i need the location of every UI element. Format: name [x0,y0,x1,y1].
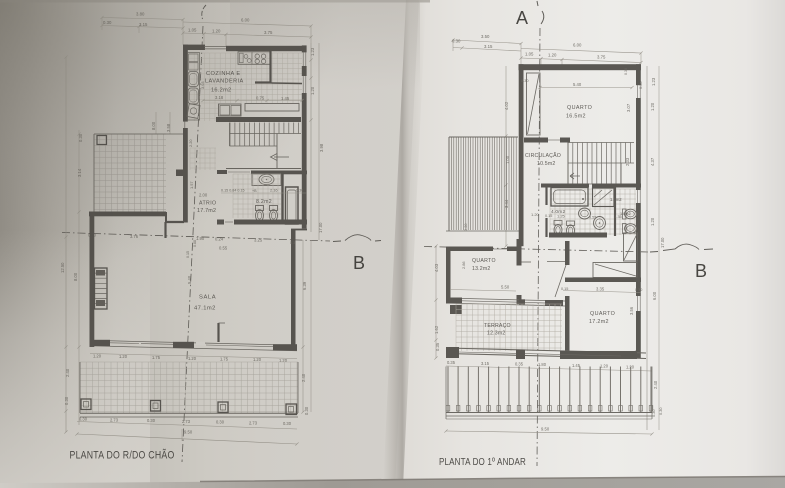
svg-text:2.20: 2.20 [188,139,193,147]
svg-text:4.02: 4.02 [504,101,509,110]
svg-text:12.50: 12.50 [60,262,65,273]
svg-text:1.20: 1.20 [650,102,655,111]
svg-text:A: A [516,8,528,28]
svg-text:6.00: 6.00 [241,18,250,23]
svg-text:2.40: 2.40 [301,373,306,382]
svg-text:6.00: 6.00 [573,43,582,48]
svg-text:B: B [695,261,707,281]
svg-text:3.76: 3.76 [130,234,139,239]
svg-text:0.24: 0.24 [215,237,224,242]
svg-text:16.5m2: 16.5m2 [566,114,586,120]
svg-text:TERRAÇO: TERRAÇO [484,323,511,329]
svg-text:1.20: 1.20 [119,354,128,359]
svg-text:1.20: 1.20 [310,86,315,95]
svg-text:3.15: 3.15 [481,361,490,366]
svg-text:1.20: 1.20 [650,217,655,226]
svg-text:1.20: 1.20 [253,357,262,362]
svg-text:3.15: 3.15 [139,22,148,27]
svg-text:COZINHA E: COZINHA E [206,71,241,77]
svg-text:3.98: 3.98 [319,143,324,152]
svg-text:0.88: 0.88 [193,240,197,247]
svg-text:0.55: 0.55 [219,246,228,251]
svg-text:0.30: 0.30 [216,420,225,425]
svg-text:0.30: 0.30 [521,78,529,83]
svg-text:0.30: 0.30 [635,288,642,292]
svg-text:6.00: 6.00 [652,291,657,300]
svg-text:QUARTO: QUARTO [472,258,496,264]
svg-text:1.20: 1.20 [548,53,557,58]
svg-text:3.50: 3.50 [481,34,490,39]
svg-text:5.3: 5.3 [290,241,295,245]
svg-text:0.15: 0.15 [561,287,568,291]
svg-text:47.1m2: 47.1m2 [194,306,216,312]
svg-text:3.58: 3.58 [166,123,171,132]
svg-text:+B: +B [252,189,257,193]
svg-text:8.2m2: 8.2m2 [256,199,272,205]
svg-text:LAVANDERIA: LAVANDERIA [205,79,244,85]
svg-text:9.50: 9.50 [541,427,550,432]
svg-text:0.30: 0.30 [147,418,156,423]
svg-text:1.23: 1.23 [651,77,656,86]
svg-text:QUARTO: QUARTO [590,311,615,317]
svg-text:2.73: 2.73 [249,420,258,425]
svg-text:PLANTA DO 1º ANDAR: PLANTA DO 1º ANDAR [439,457,526,468]
svg-text:QUARTO: QUARTO [567,105,592,111]
svg-text:SALA: SALA [199,295,216,301]
svg-text:1.62: 1.62 [434,325,439,334]
svg-text:1.05: 1.05 [525,52,534,57]
svg-text:13.2m2: 13.2m2 [472,266,491,272]
svg-text:0.30: 0.30 [283,421,292,426]
svg-text:8.00: 8.00 [151,121,156,130]
svg-text:9.50: 9.50 [184,430,193,435]
svg-text:0.30: 0.30 [304,406,309,415]
svg-text:ATRIO: ATRIO [199,201,216,207]
svg-text:16.2m2: 16.2m2 [211,88,231,94]
svg-text:5.40: 5.40 [187,275,192,284]
svg-text:1.05: 1.05 [188,28,197,33]
svg-text:0.35: 0.35 [447,360,456,365]
svg-text:3.15: 3.15 [484,44,493,49]
svg-text:0.35: 0.35 [515,362,524,367]
svg-text:2.40: 2.40 [65,368,70,377]
svg-text:0.30: 0.30 [78,133,83,142]
svg-text:3.80: 3.80 [136,12,145,17]
svg-text:1.20: 1.20 [93,354,102,359]
svg-text:5.40: 5.40 [573,82,582,87]
svg-text:3.75: 3.75 [597,55,606,60]
svg-text:1.57: 1.57 [189,181,194,189]
svg-text:0.30: 0.30 [103,20,112,25]
svg-text:3.75: 3.75 [264,30,273,35]
svg-text:8.00: 8.00 [73,272,78,281]
svg-text:2.00: 2.00 [199,193,208,198]
svg-text:0.30: 0.30 [658,407,663,415]
svg-text:3.18: 3.18 [215,95,224,100]
svg-text:0.30: 0.30 [452,39,461,44]
svg-text:17.2m2: 17.2m2 [589,319,609,325]
svg-text:1.20: 1.20 [600,364,609,369]
svg-text:PLANTA DO R/DO CHÃO: PLANTA DO R/DO CHÃO [70,449,175,462]
svg-text:0.75: 0.75 [256,96,265,101]
svg-text:10.5m2: 10.5m2 [537,161,556,167]
svg-text:3.35: 3.35 [596,287,605,292]
svg-text:2.16: 2.16 [270,188,278,193]
svg-text:B: B [353,253,365,273]
svg-text:3.56: 3.56 [629,306,634,315]
svg-text:1.45: 1.45 [572,363,581,368]
svg-text:1.90: 1.90 [196,236,205,241]
svg-text:1.5m2: 1.5m2 [610,197,622,202]
svg-text:17.7m2: 17.7m2 [197,208,216,214]
svg-text:1.20: 1.20 [212,29,221,34]
svg-text:1.80: 1.80 [538,362,547,367]
svg-text:2.73: 2.73 [110,417,119,422]
svg-text:0.15 0.84 0.15: 0.15 0.84 0.15 [221,189,245,193]
svg-text:1.25: 1.25 [557,214,566,219]
svg-text:0.30: 0.30 [64,396,69,405]
svg-text:5.50: 5.50 [501,285,510,290]
svg-text:3.25: 3.25 [254,238,263,243]
svg-text:2.40: 2.40 [653,380,658,389]
svg-text:2.73: 2.73 [182,419,191,424]
svg-text:1.75: 1.75 [152,355,161,360]
svg-text:0.30: 0.30 [79,417,88,422]
svg-text:1.23: 1.23 [310,47,315,56]
svg-text:12.3m2: 12.3m2 [487,331,506,337]
svg-text:17.00: 17.00 [318,222,323,233]
svg-text:1.20: 1.20 [531,212,540,217]
svg-text:3.07: 3.07 [626,103,631,112]
svg-text:0.15: 0.15 [186,251,190,258]
svg-text:3.14: 3.14 [77,168,82,177]
svg-text:4.03: 4.03 [434,263,439,272]
svg-text:1.35: 1.35 [614,214,623,219]
svg-text:1.20: 1.20 [188,356,197,361]
svg-text:17.00: 17.00 [660,237,665,248]
svg-text:4.37: 4.37 [650,157,655,166]
svg-text:0.55: 0.55 [589,216,596,220]
svg-text:0.30: 0.30 [296,189,303,193]
svg-text:0.35: 0.35 [435,342,440,351]
svg-text:0.15: 0.15 [545,214,552,218]
svg-text:2.86: 2.86 [461,261,466,269]
svg-text:1.75: 1.75 [220,357,229,362]
svg-text:0.30: 0.30 [624,68,628,75]
svg-text:CIRCULAÇÃO: CIRCULAÇÃO [525,152,561,159]
svg-text:1.45: 1.45 [281,96,290,101]
svg-text:6.39: 6.39 [302,281,307,290]
